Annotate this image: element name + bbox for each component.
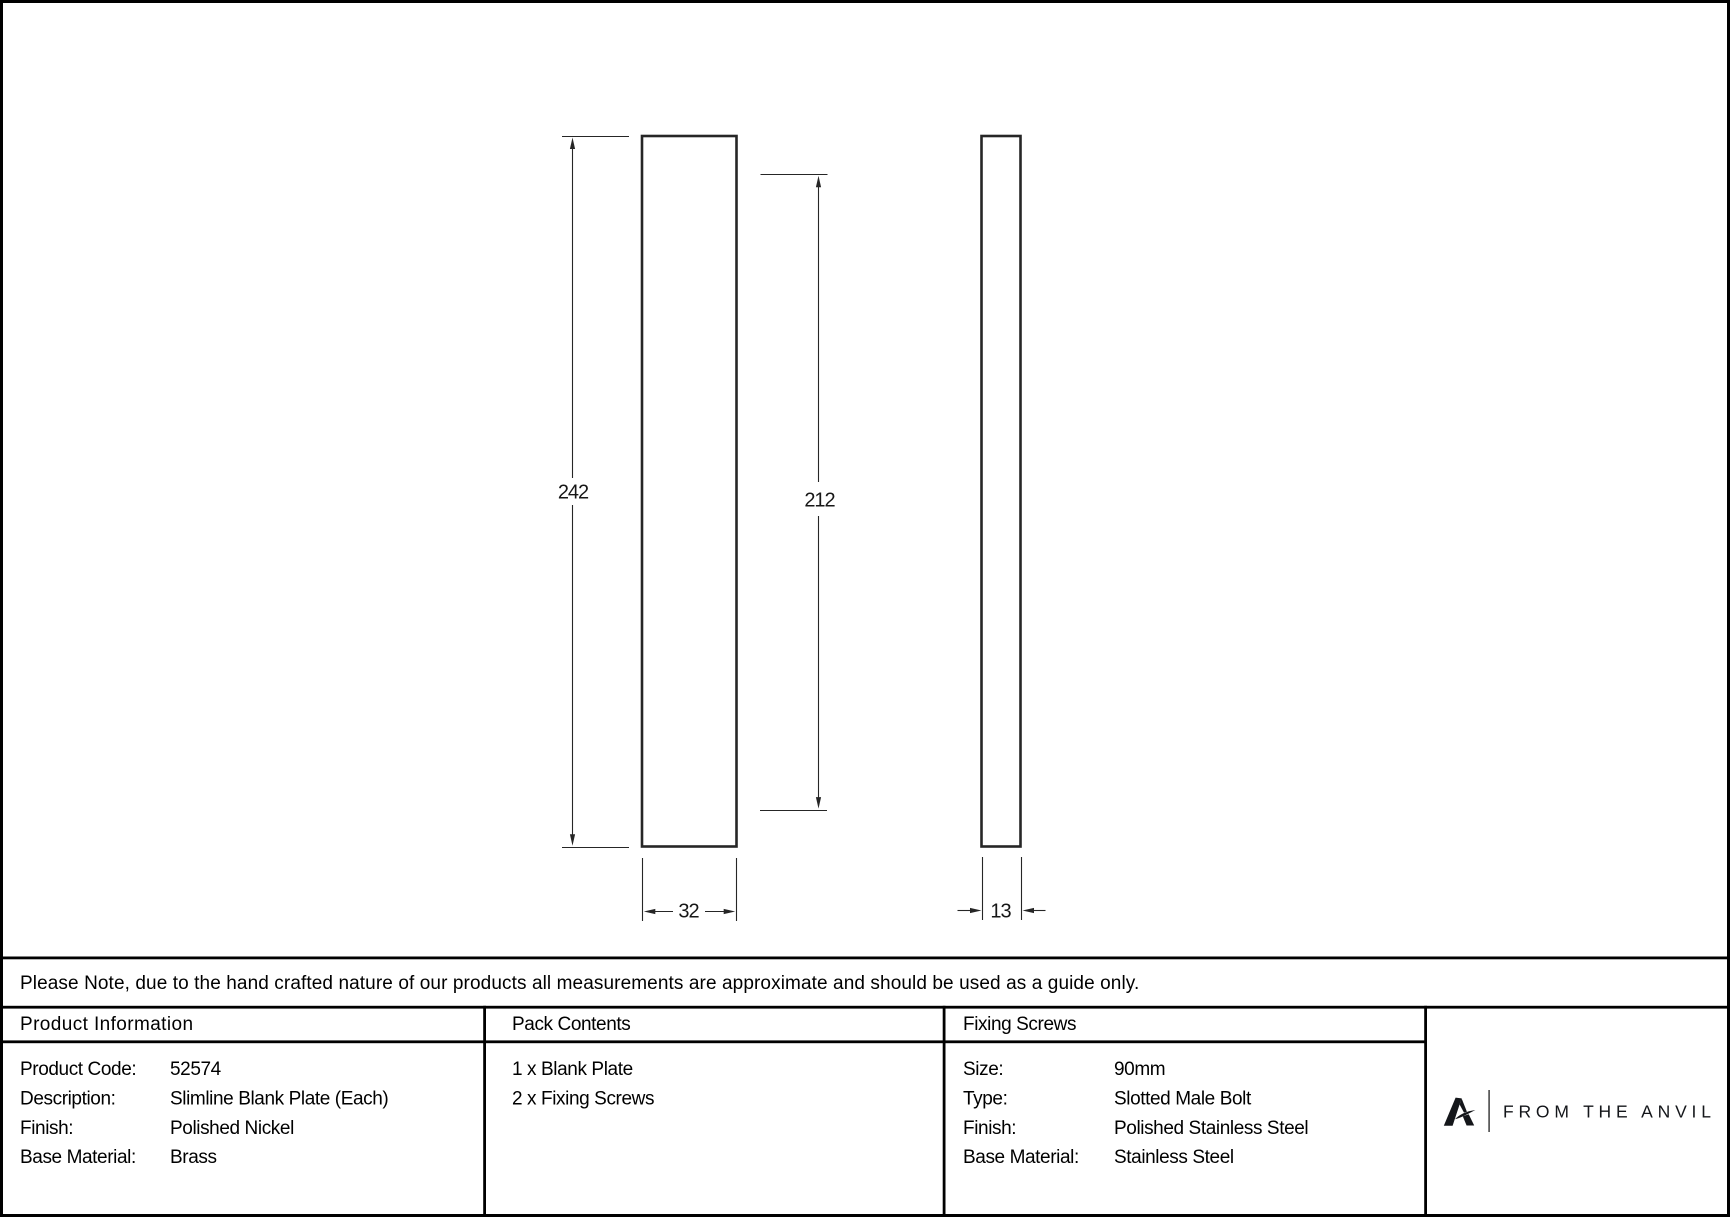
svg-text:Type:: Type: <box>963 1088 1007 1109</box>
svg-text:Size:: Size: <box>963 1059 1003 1080</box>
svg-text:90mm: 90mm <box>1114 1059 1165 1080</box>
svg-text:Slotted Male Bolt: Slotted Male Bolt <box>1114 1088 1252 1109</box>
svg-text:Finish:: Finish: <box>963 1118 1016 1139</box>
svg-text:FROM THE ANVIL: FROM THE ANVIL <box>1503 1102 1716 1122</box>
svg-text:212: 212 <box>804 490 835 512</box>
svg-text:2 x Fixing Screws: 2 x Fixing Screws <box>512 1088 654 1109</box>
svg-text:52574: 52574 <box>170 1059 222 1080</box>
svg-text:Pack Contents: Pack Contents <box>512 1014 630 1035</box>
svg-text:Finish:: Finish: <box>20 1118 73 1139</box>
svg-text:Description:: Description: <box>20 1088 116 1109</box>
svg-text:1 x Blank Plate: 1 x Blank Plate <box>512 1059 633 1080</box>
svg-text:Slimline Blank Plate (Each): Slimline Blank Plate (Each) <box>170 1088 388 1109</box>
svg-text:Stainless Steel: Stainless Steel <box>1114 1147 1234 1168</box>
svg-text:13: 13 <box>990 901 1011 923</box>
svg-text:Base Material:: Base Material: <box>963 1147 1079 1168</box>
svg-text:Product Code:: Product Code: <box>20 1059 136 1080</box>
svg-text:Product Information: Product Information <box>20 1014 193 1035</box>
svg-text:Base Material:: Base Material: <box>20 1147 136 1168</box>
svg-text:Please Note, due to the hand c: Please Note, due to the hand crafted nat… <box>20 973 1139 994</box>
svg-text:Polished Stainless Steel: Polished Stainless Steel <box>1114 1118 1308 1139</box>
svg-text:Fixing Screws: Fixing Screws <box>963 1014 1076 1035</box>
svg-text:Polished Nickel: Polished Nickel <box>170 1118 294 1139</box>
svg-text:32: 32 <box>678 901 699 923</box>
svg-text:242: 242 <box>558 482 589 504</box>
svg-text:Brass: Brass <box>170 1147 217 1168</box>
